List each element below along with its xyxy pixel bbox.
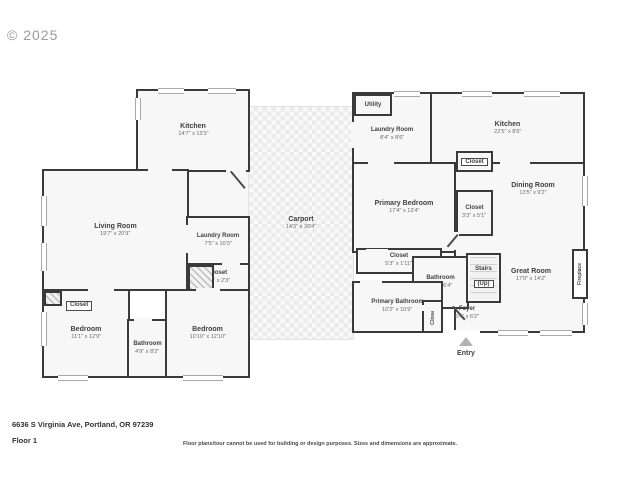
copyright-watermark: © 2025 (7, 27, 58, 43)
room-dims: 7'5" x 10'3" (199, 241, 238, 248)
primary-bathroom-label: Primary Bathroom 10'2" x 10'9" (371, 299, 423, 315)
room-name: Closet (384, 253, 413, 261)
room-name: Dining Room (493, 181, 573, 190)
window (208, 88, 236, 94)
laundry-left-label: Laundry Room 7'5" x 10'3" (197, 233, 239, 249)
window (183, 375, 223, 381)
door-gap (360, 280, 382, 285)
room-name: Bedroom (70, 325, 102, 334)
window (462, 91, 492, 97)
window (524, 91, 560, 97)
room-utility: Utility (354, 94, 392, 116)
primary-bedroom-label: Primary Bedroom 17'4" x 13'4" (375, 199, 434, 216)
dining-room-label: Dining Room 13'5" x 9'2" (493, 181, 573, 198)
door-gap (368, 161, 394, 167)
room-name: Living Room (94, 222, 136, 231)
entry-arrow-icon (459, 337, 473, 346)
room-name: Primary Bathroom (371, 299, 423, 307)
door-gap (222, 262, 240, 267)
disclaimer-text: Floor plans/tour cannot be used for buil… (0, 441, 640, 447)
room-name: Bathroom (133, 341, 161, 349)
entry-label: Entry (440, 349, 492, 358)
door-gap (420, 305, 436, 311)
room-dims: 11'1" x 12'9" (71, 334, 101, 341)
bedroom-1-label: Bedroom 11'1" x 12'9" (70, 325, 102, 342)
window (158, 88, 184, 94)
room-dims: 4'9" x 8'2" (134, 349, 160, 356)
carport-label: Carport 14'3" x 30'4" (249, 215, 353, 232)
room-dims: 3'3" x 5'1" (462, 213, 486, 220)
property-address: 6636 S Virginia Ave, Portland, OR 97239 (12, 420, 153, 429)
kitchen-left-label: Kitchen 14'7" x 13'3" (177, 122, 210, 139)
room-bathroom-left: Bathroom 4'9" x 8'2" (127, 319, 168, 378)
door-gap (366, 249, 388, 255)
room-dims: 5'4" x 6'2" (447, 314, 487, 321)
room-dims: 10'10" x 12'10" (189, 334, 225, 341)
window (498, 330, 528, 336)
window (58, 375, 88, 381)
room-name: Bedroom (188, 325, 228, 334)
living-room-label: Living Room 19'7" x 20'9" (94, 222, 136, 239)
room-name: Kitchen (493, 120, 523, 129)
door-gap (351, 122, 356, 148)
hall-floor (186, 172, 248, 218)
closet-hall-right-label: Closet 5'3" x 1'11" (384, 253, 413, 269)
foyer-label: Foyer 5'4" x 6'2" (445, 306, 489, 322)
room-name: Closet (461, 158, 487, 166)
door-gap (134, 318, 152, 323)
fireplace-label: Fireplace (577, 263, 583, 285)
room-name: Closet (461, 205, 487, 213)
door-gap (196, 288, 220, 294)
room-dims: 22'5" x 8'6" (494, 129, 521, 136)
room-dims: 14'3" x 30'4" (253, 224, 349, 231)
room-name: Carport (249, 215, 353, 224)
kitchen-right-label: Kitchen 22'5" x 8'6" (493, 120, 523, 137)
room-dims: 19'7" x 20'9" (96, 231, 135, 238)
room-dims: 5'3" x 1'11" (386, 261, 413, 268)
room-primary-bedroom: Primary Bedroom 17'4" x 13'4" (352, 162, 456, 253)
room-dims: 8'4" x 8'6" (373, 135, 412, 142)
room-dims: 10'2" x 10'9" (373, 307, 421, 314)
window (41, 243, 47, 271)
fireplace: Fireplace (572, 249, 588, 299)
floor-plan-viewer: © 2025 Carport 14'3" x 30'4" Kitchen 14'… (0, 0, 640, 480)
room-dims: 14'7" x 13'3" (178, 131, 208, 138)
room-bedroom-2: Bedroom 10'10" x 12'10" (165, 289, 250, 378)
room-living: Living Room 19'7" x 20'9" (42, 169, 189, 291)
room-name: Foyer (445, 306, 489, 314)
bathroom-left-label: Bathroom 4'9" x 8'2" (133, 341, 161, 357)
room-name: Laundry Room (197, 233, 239, 241)
room-kitchen-left: Kitchen 14'7" x 13'3" (136, 89, 250, 172)
room-name: Laundry Room (371, 127, 413, 135)
room-dims: 13'5" x 9'2" (496, 190, 570, 197)
bedroom-closet-label: Closet (66, 292, 92, 313)
entry-door-gap (452, 330, 480, 335)
room-dims: 17'4" x 13'4" (377, 208, 431, 215)
great-room-label: Great Room 17'0" x 14'2" (491, 267, 571, 284)
room-kitchen-right: Kitchen 22'5" x 8'6" (430, 92, 585, 164)
window (41, 196, 47, 226)
door-gap (148, 168, 172, 173)
room-dims: 17'0" x 14'2" (494, 276, 568, 283)
window (582, 176, 588, 206)
closet-hatch (44, 291, 62, 306)
window (540, 330, 572, 336)
room-name: Primary Bedroom (375, 199, 434, 208)
window (582, 303, 588, 325)
room-name: Entry (440, 349, 492, 358)
door-gap (186, 225, 191, 253)
window (394, 91, 420, 97)
room-laundry-left: Laundry Room 7'5" x 10'3" (186, 216, 250, 266)
window (41, 312, 47, 346)
room-closet-top: Closet (456, 151, 493, 172)
laundry-right-label: Laundry Room 8'4" x 8'6" (371, 127, 413, 143)
room-name: Great Room (491, 267, 571, 276)
room-name: Closet (66, 301, 92, 311)
room-name: Kitchen (177, 122, 210, 131)
window (135, 98, 141, 120)
bedroom-2-label: Bedroom 10'10" x 12'10" (188, 325, 228, 342)
closet-primary-label: Closet 3'3" x 5'1" (461, 205, 487, 221)
room-name: Utility (365, 102, 382, 108)
door-gap (500, 161, 530, 167)
room-closet-primary: Closet 3'3" x 5'1" (456, 190, 493, 236)
